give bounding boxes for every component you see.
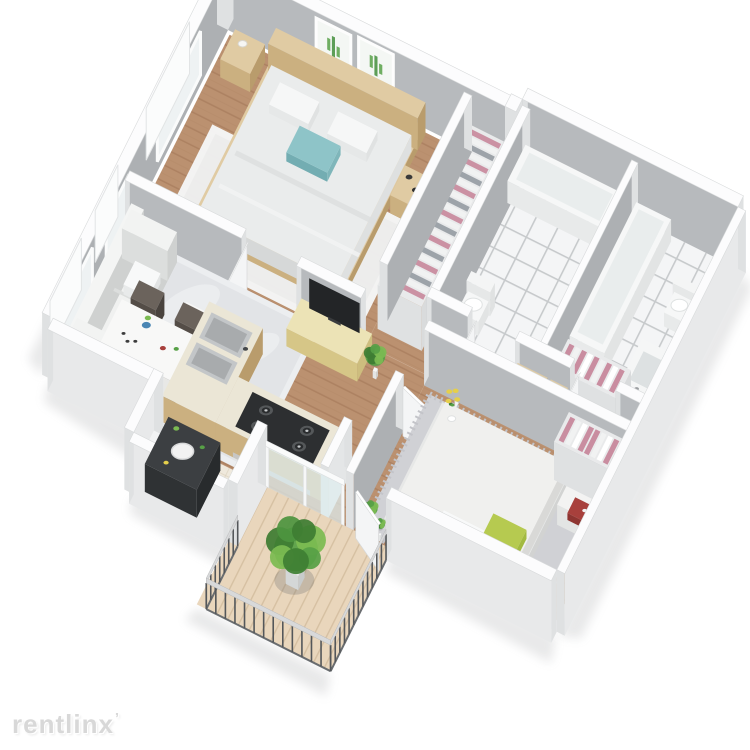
floor-plan-render — [0, 0, 750, 750]
door-mullion — [266, 442, 269, 488]
table-decor-dark — [125, 340, 129, 343]
door-mullion — [303, 461, 306, 507]
shape — [374, 55, 377, 77]
rentlinx-logo-text: rentlinx — [12, 709, 114, 739]
table-lamp — [238, 40, 247, 46]
table-decor-plant — [145, 316, 151, 321]
shape — [283, 548, 309, 574]
shape — [374, 355, 383, 364]
flower — [454, 397, 460, 401]
table-decor-red — [160, 346, 166, 350]
floor-plan-screenshot: rentlinx’ — [0, 0, 750, 750]
rentlinx-logo-mark: ’ — [115, 710, 120, 727]
shape — [370, 344, 380, 354]
shape — [551, 570, 557, 643]
shape — [305, 430, 308, 432]
flower — [446, 399, 452, 403]
shape — [380, 261, 388, 321]
shape — [297, 445, 300, 447]
table-decor-blue — [142, 322, 151, 328]
flower — [446, 389, 452, 393]
faucet — [243, 347, 248, 351]
flower — [453, 389, 459, 393]
shape — [557, 570, 565, 636]
shape — [346, 470, 354, 530]
round-lid — [172, 443, 194, 459]
green-accent — [173, 426, 179, 430]
door-mullion — [341, 480, 344, 525]
shape — [380, 524, 385, 529]
shape — [450, 404, 454, 407]
decor-item — [406, 175, 413, 180]
shape — [264, 409, 267, 411]
shape — [337, 46, 340, 58]
toilet-seat — [671, 299, 688, 311]
vase — [448, 416, 456, 422]
yellow-accent — [163, 461, 168, 465]
shape — [379, 64, 382, 76]
table-decor-green — [174, 347, 179, 351]
rentlinx-logo: rentlinx’ — [12, 709, 120, 740]
green-accent — [200, 445, 205, 449]
shape — [332, 36, 335, 60]
shape — [370, 55, 373, 69]
table-decor-dark — [122, 332, 126, 335]
table-decor-dark — [133, 340, 137, 343]
shape — [292, 519, 316, 543]
shape — [327, 38, 330, 52]
